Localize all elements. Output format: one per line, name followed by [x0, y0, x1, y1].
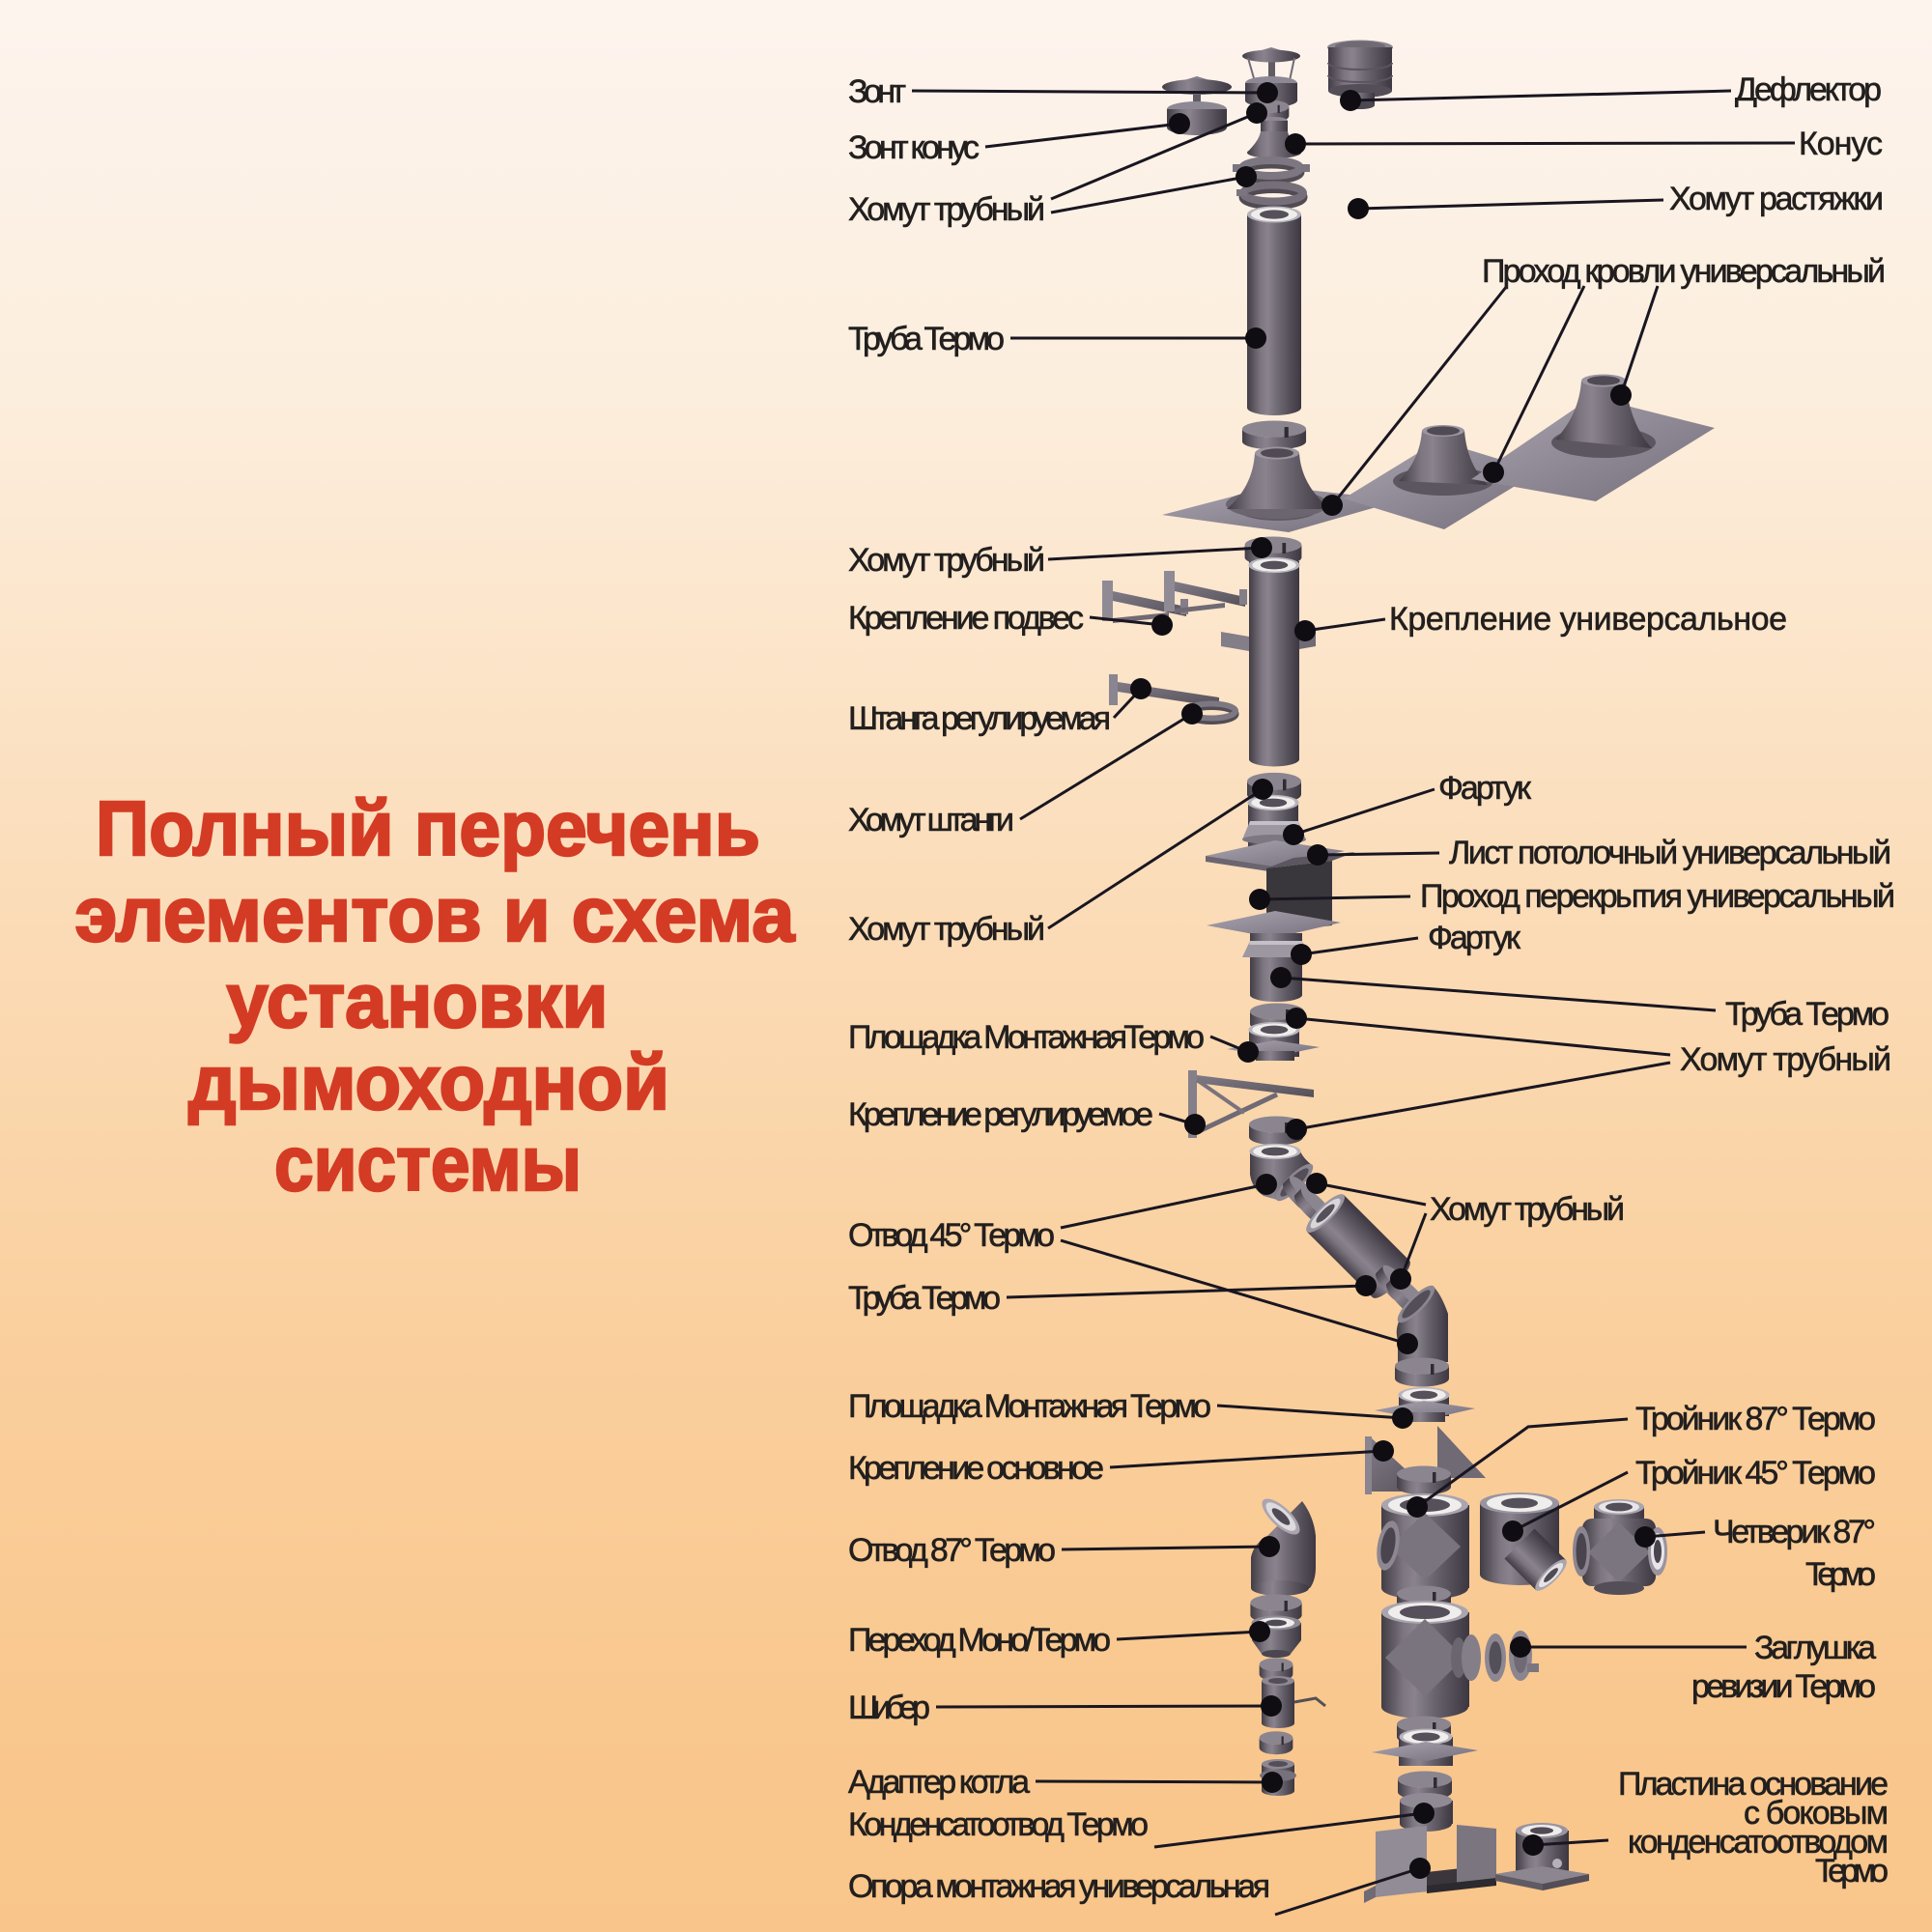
svg-text:Крепление основное: Крепление основное	[848, 1450, 1104, 1487]
svg-text:Лист потолочный универсальный: Лист потолочный универсальный	[1449, 835, 1891, 871]
svg-text:Крепление регулируемое: Крепление регулируемое	[848, 1096, 1153, 1133]
svg-text:Дефлектор: Дефлектор	[1735, 71, 1882, 108]
svg-text:Хомут растяжки: Хомут растяжки	[1669, 181, 1884, 217]
svg-text:Штанга регулируемая: Штанга регулируемая	[848, 700, 1111, 737]
svg-text:Площадка МонтажнаяТермо: Площадка МонтажнаяТермо	[848, 1019, 1205, 1056]
svg-text:Отвод 45° Термо: Отвод 45° Термо	[848, 1217, 1055, 1254]
svg-text:Труба Термо: Труба Термо	[848, 321, 1005, 357]
svg-text:элементов и схема: элементов и схема	[75, 871, 795, 957]
svg-text:Тройник 45° Термо: Тройник 45° Термо	[1635, 1455, 1876, 1492]
svg-text:Четверик 87°: Четверик 87°	[1713, 1514, 1876, 1550]
svg-text:Хомут трубный: Хомут трубный	[848, 542, 1045, 579]
svg-text:дымоходной: дымоходной	[188, 1039, 669, 1125]
svg-text:Шибер: Шибер	[848, 1690, 930, 1726]
svg-text:Площадка Монтажная Термо: Площадка Монтажная Термо	[848, 1388, 1211, 1425]
svg-text:Труба Термо: Труба Термо	[848, 1280, 1001, 1317]
svg-text:Фартук: Фартук	[1438, 770, 1532, 807]
svg-text:Труба Термо: Труба Термо	[1725, 996, 1889, 1033]
svg-text:Заглушка: Заглушка	[1754, 1630, 1876, 1666]
svg-text:Опора монтажная универсальная: Опора монтажная универсальная	[848, 1868, 1270, 1905]
svg-text:Конус: Конус	[1799, 126, 1883, 162]
svg-text:Проход кровли универсальный: Проход кровли универсальный	[1482, 253, 1886, 290]
svg-text:Хомут трубный: Хомут трубный	[1430, 1191, 1625, 1228]
svg-text:ревизии Термо: ревизии Термо	[1691, 1668, 1876, 1705]
svg-text:Тройник 87° Термо: Тройник 87° Термо	[1635, 1401, 1876, 1437]
svg-text:Термо: Термо	[1815, 1853, 1889, 1889]
svg-text:Зонт: Зонт	[848, 73, 906, 110]
svg-text:Хомут трубный: Хомут трубный	[1680, 1041, 1891, 1078]
svg-text:Фартук: Фартук	[1428, 920, 1521, 956]
svg-text:Хомут трубный: Хомут трубный	[848, 911, 1045, 948]
svg-text:Адаптер котла: Адаптер котла	[848, 1764, 1030, 1801]
svg-text:установки: установки	[227, 957, 609, 1043]
svg-text:Отвод 87° Термо: Отвод 87° Термо	[848, 1532, 1056, 1569]
svg-text:Конденсатоотвод Термо: Конденсатоотвод Термо	[848, 1806, 1149, 1843]
svg-text:Крепление подвес: Крепление подвес	[848, 600, 1084, 637]
svg-text:Хомут штанги: Хомут штанги	[848, 802, 1014, 838]
svg-text:Переход Моно/Термо: Переход Моно/Термо	[848, 1622, 1111, 1659]
svg-text:Крепление универсальное: Крепление универсальное	[1389, 601, 1787, 638]
svg-text:Проход перекрытия универсальны: Проход перекрытия универсальный	[1420, 878, 1895, 915]
svg-text:Хомут трубный: Хомут трубный	[848, 191, 1045, 228]
svg-text:Полный перечень: Полный перечень	[96, 785, 760, 871]
svg-text:Термо: Термо	[1805, 1556, 1876, 1593]
svg-text:Зонт конус: Зонт конус	[848, 129, 980, 166]
svg-text:системы: системы	[274, 1121, 582, 1207]
